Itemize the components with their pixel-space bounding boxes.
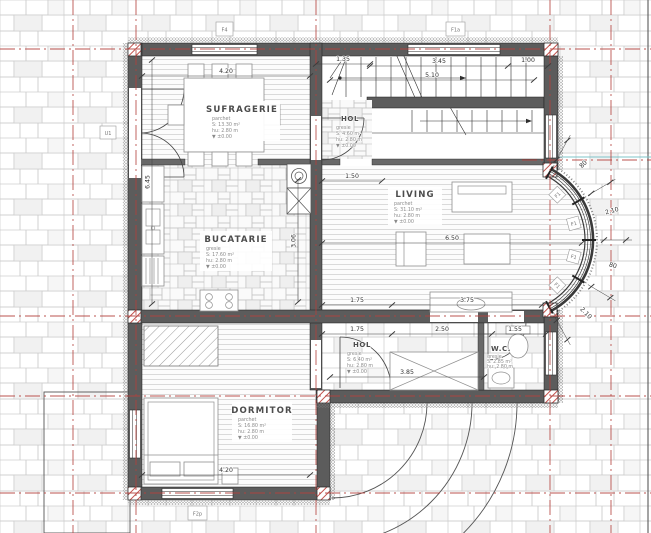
- window-right-upper: [546, 115, 557, 158]
- room-level-hol-sus: ▼ ±0.00: [336, 143, 356, 149]
- room-title-hol-jos: HOL: [353, 341, 371, 349]
- room-floor-bucatarie: gresie: [206, 246, 221, 252]
- room-level-bucatarie: ▼ ±0.00: [206, 264, 226, 270]
- dim-hol-seg-a: 1.75: [350, 326, 364, 333]
- room-title-wc: W.C.: [491, 345, 511, 353]
- room-floor-hol-sus: gresie: [336, 125, 351, 131]
- room-area-dormitor: S: 16.80 m²: [238, 423, 266, 429]
- chimney-shaft: [287, 164, 311, 214]
- window-dormitor-bottom: [162, 489, 233, 499]
- room-area-hol-sus: S: 4.60 m²: [336, 131, 361, 137]
- tag-window-stairs: F1a: [446, 22, 465, 36]
- room-height-hol-sus: hu: 2.80 m: [336, 137, 362, 143]
- room-floor-living: parchet: [394, 201, 412, 207]
- tag-door-entry: U1: [100, 126, 116, 139]
- room-height-bucatarie: hu: 2.80 m: [206, 258, 232, 264]
- room-height-living: hu: 2.80 m: [394, 213, 420, 219]
- dim-left-depth: 6.45: [145, 175, 152, 189]
- room-title-hol-sus: HOL: [341, 115, 359, 123]
- room-floor-sufragerie: parchet: [212, 116, 230, 122]
- kitchen-sink: [142, 204, 164, 254]
- tag-bay-f1: F1: [566, 216, 581, 231]
- room-level-sufragerie: ▼ ±0.00: [212, 134, 232, 140]
- room-area-hol-jos: S: 6.40 m²: [347, 357, 372, 363]
- dim-suf-width: 4.20: [219, 68, 233, 75]
- svg-text:F2p: F2p: [193, 512, 202, 518]
- tag-window-top-left: F4: [216, 22, 233, 36]
- dim-stairs-end: 1.00: [521, 57, 535, 64]
- room-floor-hol-jos: gresie: [347, 351, 362, 357]
- dim-living-width: 6.50: [445, 235, 459, 242]
- room-label-bucatarie: BUCATARIE gresie S: 17.60 m² hu: 2.80 m …: [200, 231, 272, 271]
- room-area-sufragerie: S: 13.30 m²: [212, 122, 240, 128]
- dim-wc-width: 1.55: [508, 326, 522, 333]
- room-title-sufragerie: SUFRAGERIE: [206, 105, 278, 115]
- room-area-living: S: 31.10 m²: [394, 207, 422, 213]
- room-level-living: ▼ ±0.00: [394, 219, 414, 225]
- window-stairs-top: [408, 45, 500, 55]
- dim-hol-width: 3.85: [400, 369, 414, 376]
- room-height-sufragerie: hu: 2.80 m: [212, 128, 238, 134]
- room-floor-dormitor: parchet: [238, 417, 256, 423]
- room-level-dormitor: ▼ ±0.00: [238, 435, 258, 441]
- window-dormitor-left: [130, 410, 141, 458]
- room-label-sufragerie: SUFRAGERIE parchet S: 13.30 m² hu: 2.80 …: [204, 101, 280, 141]
- dim-hol-opening: 1.50: [345, 173, 359, 180]
- room-level-hol-jos: ▼ ±0.00: [347, 369, 367, 375]
- dim-dorm-width: 4.20: [219, 467, 233, 474]
- wc-sink: [488, 368, 514, 388]
- coffee-table: [464, 234, 510, 264]
- dim-kitchen-depth: 3.06: [291, 234, 298, 248]
- opening-living-hol: [430, 311, 478, 322]
- bed: [144, 398, 218, 484]
- room-title-dormitor: DORMITOR: [231, 406, 292, 416]
- kitchen-stove: [200, 290, 238, 311]
- svg-text:U1: U1: [105, 131, 112, 137]
- window-wc-right: [546, 332, 557, 375]
- kitchen-dishwasher: [142, 256, 164, 286]
- dim-stairs-total: 5.10: [425, 72, 439, 79]
- dim-stairs-run: 3.45: [432, 58, 446, 65]
- tag-window-dorm: F2p: [188, 506, 207, 520]
- dim-living-seg-b: 3.75: [460, 297, 474, 304]
- room-height-wc: hu: 2.80 m: [487, 364, 513, 370]
- tv-cabinet: [452, 182, 512, 212]
- room-title-bucatarie: BUCATARIE: [204, 235, 267, 245]
- room-area-bucatarie: S: 17.60 m²: [206, 252, 234, 258]
- svg-text:F4: F4: [221, 28, 227, 34]
- dim-hol-seg-b: 2.50: [435, 326, 449, 333]
- room-label-living: LIVING parchet S: 31.10 m² hu: 2.80 m ▼ …: [388, 187, 442, 225]
- dim-living-seg-a: 1.75: [350, 297, 364, 304]
- floor-plan-page: 4.20 1.35 3.45 1.00 5.10 1.50 6.45 3.06 …: [0, 0, 651, 533]
- stair-stringer-wall: [367, 97, 544, 108]
- room-label-dormitor: DORMITOR parchet S: 16.80 m² hu: 2.80 m …: [231, 402, 292, 442]
- svg-text:F1a: F1a: [451, 28, 460, 34]
- window-sufragerie-top: [192, 45, 257, 55]
- dim-stairs-start: 1.35: [336, 56, 350, 63]
- armchair: [396, 232, 426, 266]
- room-height-dormitor: hu: 2.80 m: [238, 429, 264, 435]
- room-height-hol-jos: hu: 2.80 m: [347, 363, 373, 369]
- room-title-living: LIVING: [395, 190, 434, 200]
- floor-plan-drawing: 4.20 1.35 3.45 1.00 5.10 1.50 6.45 3.06 …: [0, 0, 651, 533]
- wardrobe: [144, 326, 218, 366]
